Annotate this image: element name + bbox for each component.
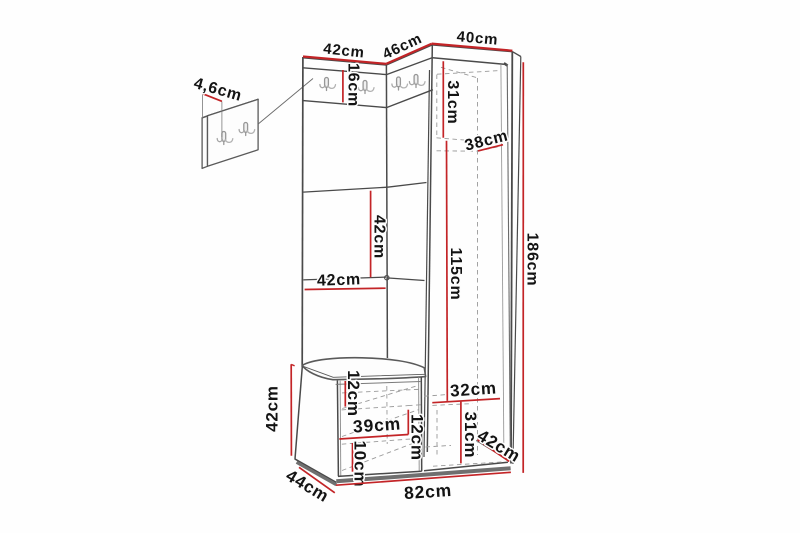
svg-text:42cm: 42cm [262, 385, 281, 432]
svg-text:40cm: 40cm [456, 28, 499, 49]
svg-text:82cm: 82cm [403, 480, 452, 503]
svg-text:31cm: 31cm [461, 412, 480, 459]
svg-text:42cm: 42cm [370, 215, 387, 259]
svg-text:39cm: 39cm [352, 413, 401, 436]
svg-text:12cm: 12cm [344, 370, 363, 417]
svg-text:16cm: 16cm [344, 63, 361, 107]
svg-text:42cm: 42cm [317, 271, 362, 290]
svg-text:115cm: 115cm [447, 248, 464, 301]
svg-text:32cm: 32cm [450, 378, 498, 400]
svg-text:12cm: 12cm [408, 414, 427, 461]
svg-text:186cm: 186cm [523, 233, 540, 287]
svg-text:10cm: 10cm [351, 441, 370, 488]
svg-text:31cm: 31cm [444, 80, 461, 124]
